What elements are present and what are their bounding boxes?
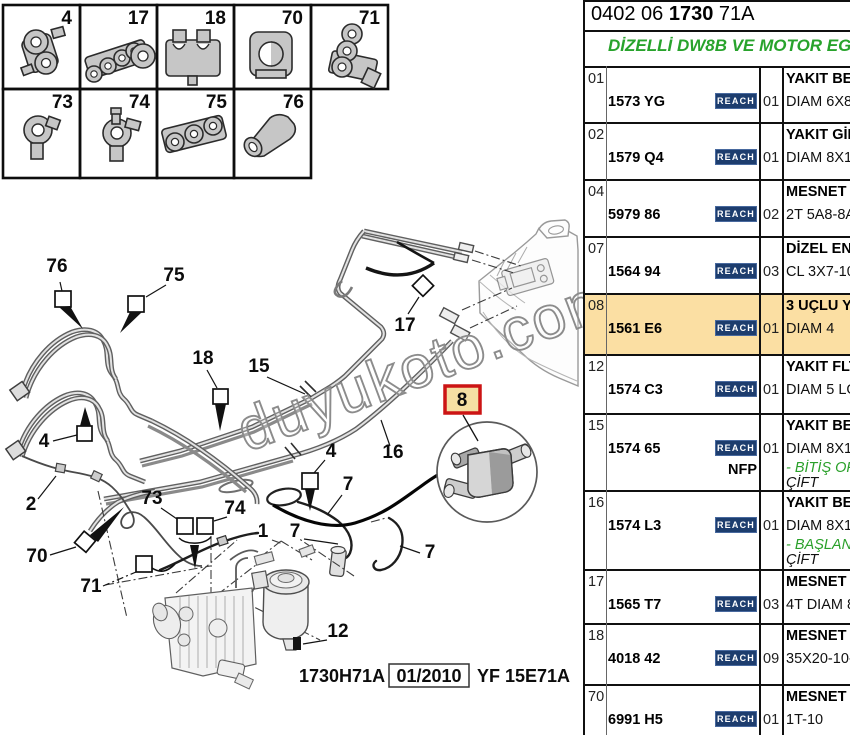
svg-text:12: 12 <box>327 621 348 642</box>
svg-text:duyukoto.com: duyukoto.com <box>228 261 583 464</box>
svg-text:7: 7 <box>343 474 354 495</box>
svg-text:70: 70 <box>26 546 47 567</box>
svg-text:18: 18 <box>192 348 213 369</box>
svg-text:71: 71 <box>80 576 102 597</box>
svg-text:76: 76 <box>46 256 67 277</box>
svg-text:7: 7 <box>290 521 301 542</box>
svg-text:70: 70 <box>282 8 303 29</box>
svg-text:4: 4 <box>326 441 337 462</box>
svg-text:74: 74 <box>129 92 151 113</box>
svg-text:1: 1 <box>258 521 269 542</box>
svg-text:71: 71 <box>359 8 381 29</box>
svg-text:4: 4 <box>39 431 50 452</box>
svg-text:2: 2 <box>26 494 37 515</box>
svg-text:75: 75 <box>163 265 185 286</box>
svg-text:15: 15 <box>248 356 270 377</box>
svg-text:73: 73 <box>52 92 73 113</box>
svg-text:8: 8 <box>457 390 468 411</box>
svg-text:74: 74 <box>224 498 246 519</box>
svg-text:18: 18 <box>205 8 226 29</box>
svg-text:7: 7 <box>425 542 436 563</box>
svg-text:75: 75 <box>206 92 228 113</box>
svg-text:76: 76 <box>283 92 304 113</box>
svg-text:73: 73 <box>141 488 162 509</box>
svg-text:16: 16 <box>382 442 403 463</box>
svg-text:YF 15E71A: YF 15E71A <box>477 666 570 686</box>
svg-text:17: 17 <box>128 8 149 29</box>
svg-text:1730H71A: 1730H71A <box>299 666 385 686</box>
svg-text:01/2010: 01/2010 <box>396 666 461 686</box>
